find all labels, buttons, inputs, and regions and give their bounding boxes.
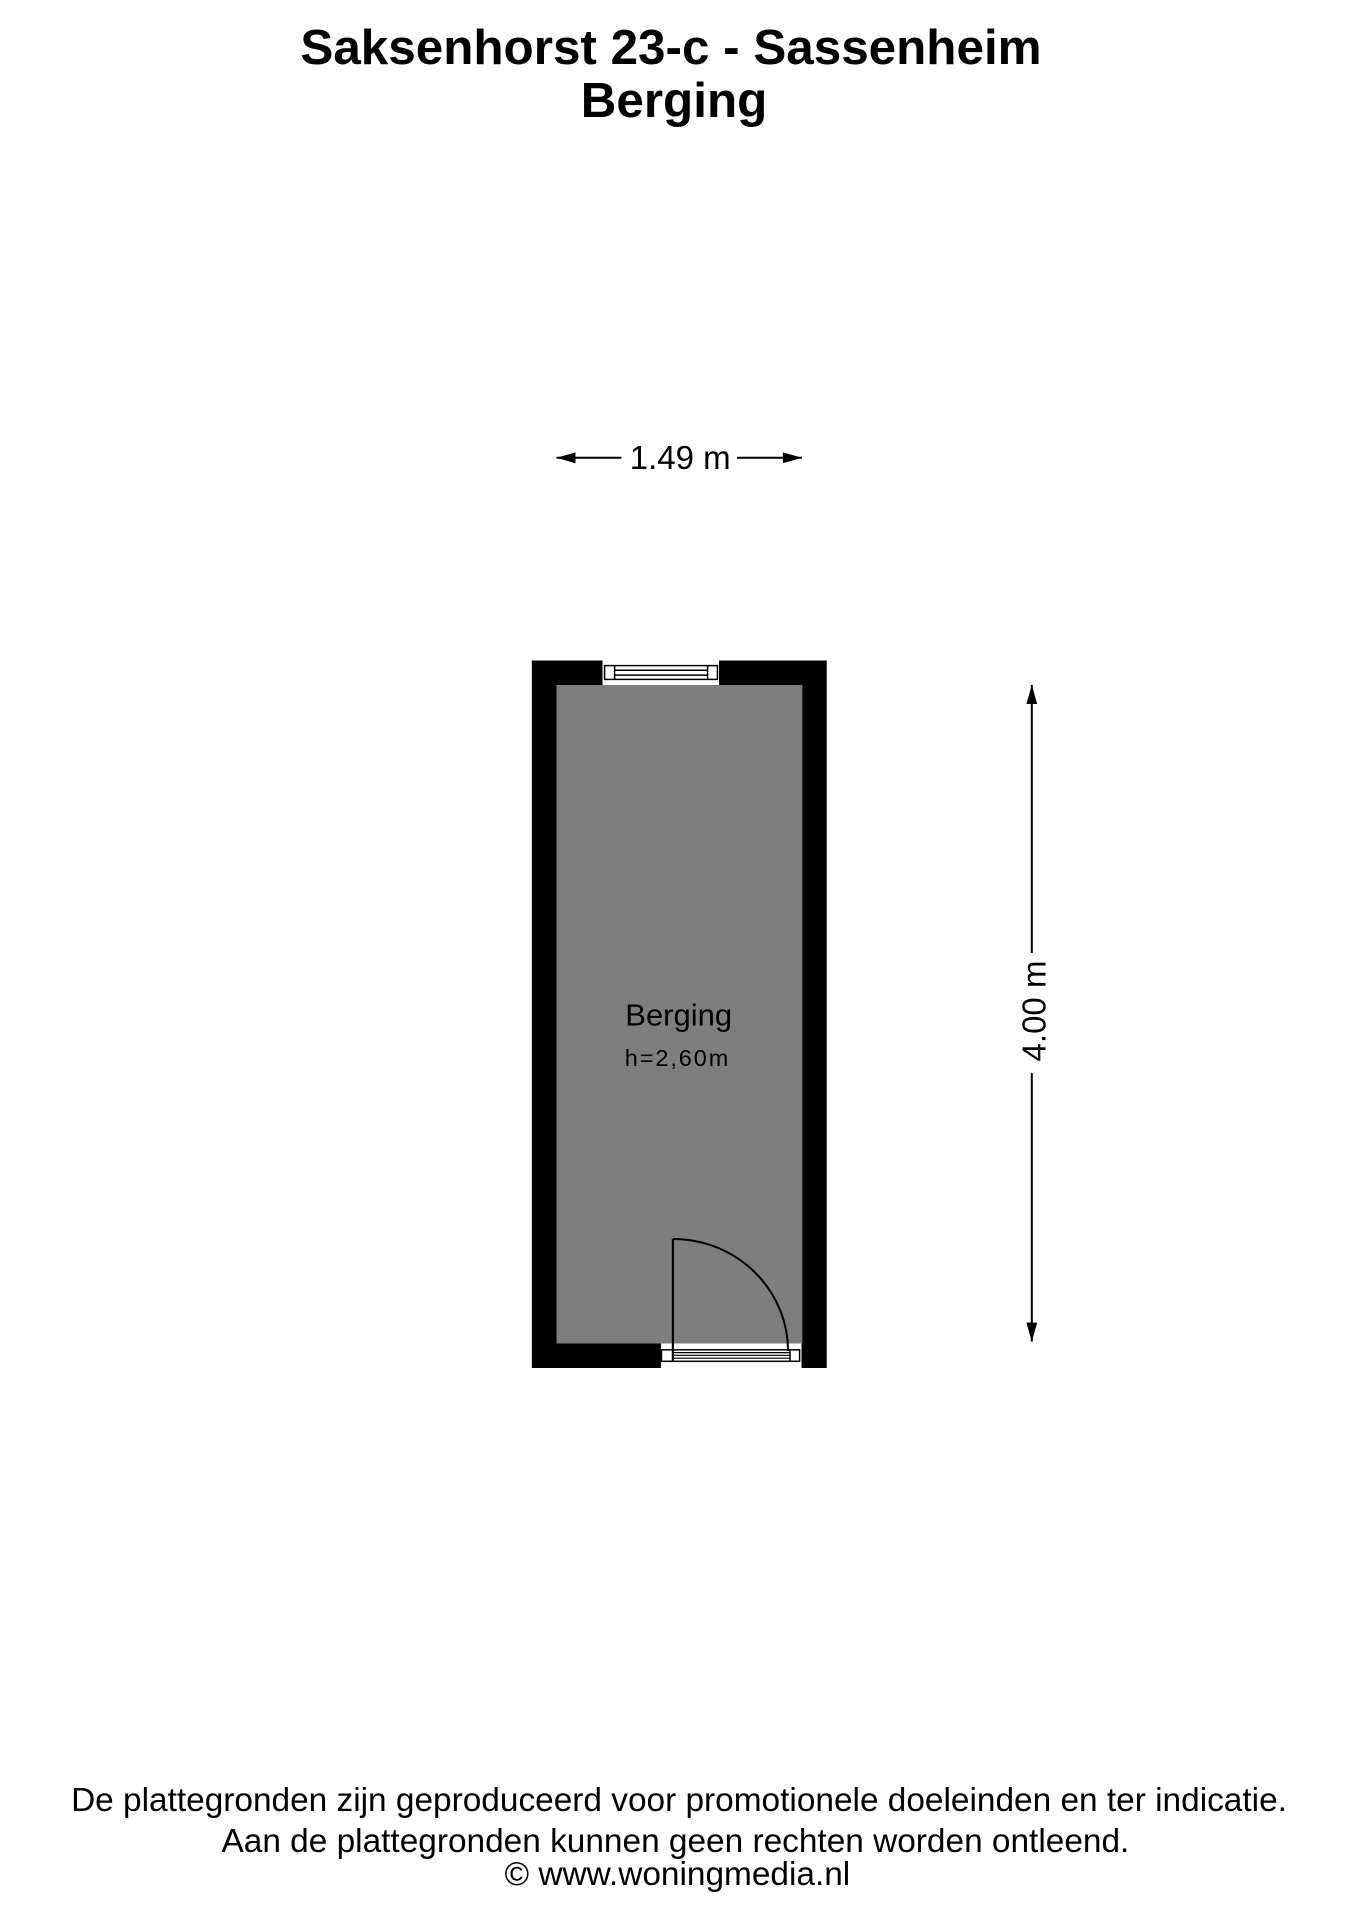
svg-text:1.49 m: 1.49 m [630, 439, 731, 476]
svg-text:Saksenhorst 23-c - Sassenheim: Saksenhorst 23-c - Sassenheim [300, 20, 1041, 75]
svg-text:Aan de plattegronden kunnen ge: Aan de plattegronden kunnen geen rechten… [221, 1823, 1129, 1860]
svg-text:De plattegronden zijn geproduc: De plattegronden zijn geproduceerd voor … [71, 1782, 1287, 1819]
svg-text:Berging: Berging [625, 997, 732, 1032]
svg-text:h=2,60m: h=2,60m [625, 1045, 730, 1071]
svg-text:4.00 m: 4.00 m [1016, 961, 1053, 1062]
svg-text:Berging: Berging [581, 73, 768, 128]
svg-text:© www.woningmedia.nl: © www.woningmedia.nl [505, 1856, 851, 1893]
